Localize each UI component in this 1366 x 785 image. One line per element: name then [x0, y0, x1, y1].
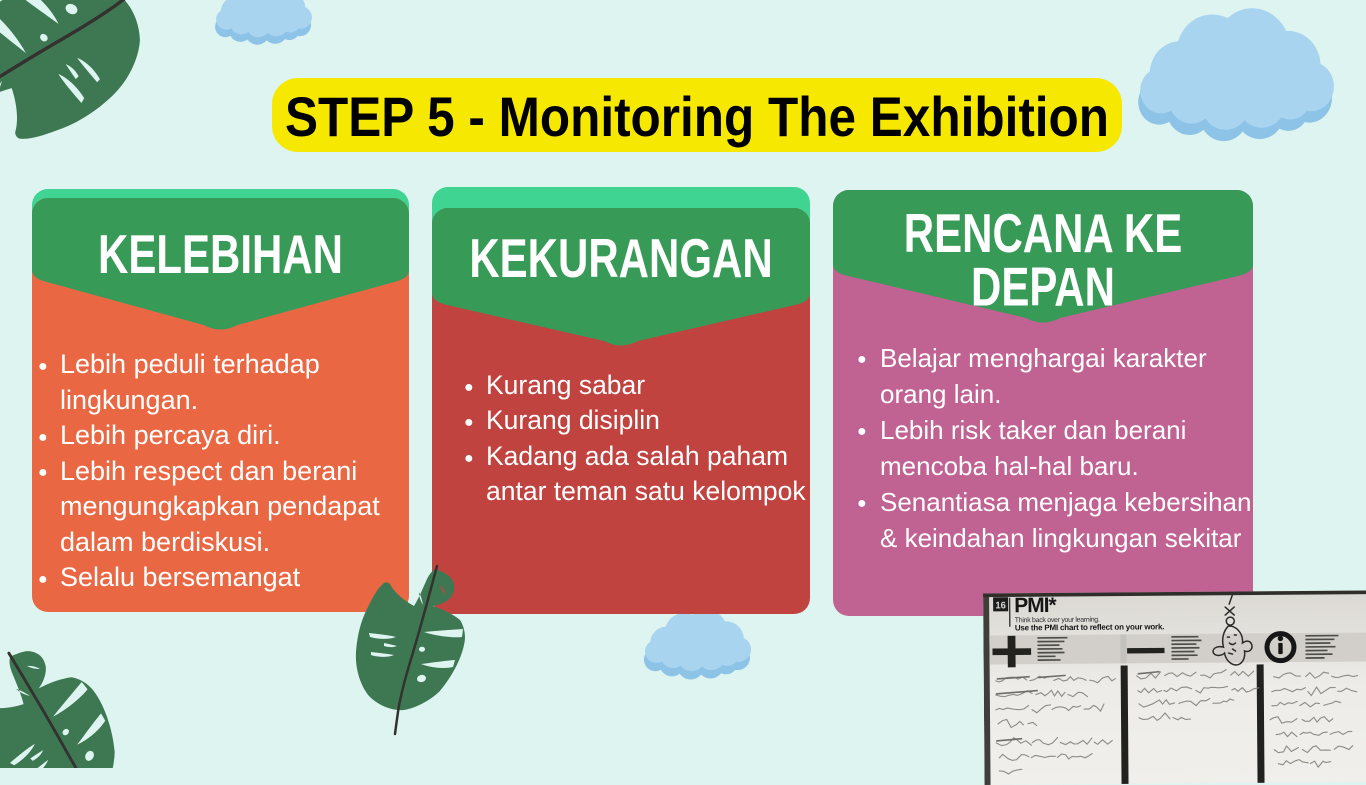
svg-text:16: 16 — [995, 600, 1006, 611]
svg-text:PMI*: PMI* — [1014, 594, 1058, 617]
svg-text:Use the PMI chart to reflect o: Use the PMI chart to reflect on your wor… — [1015, 622, 1164, 632]
